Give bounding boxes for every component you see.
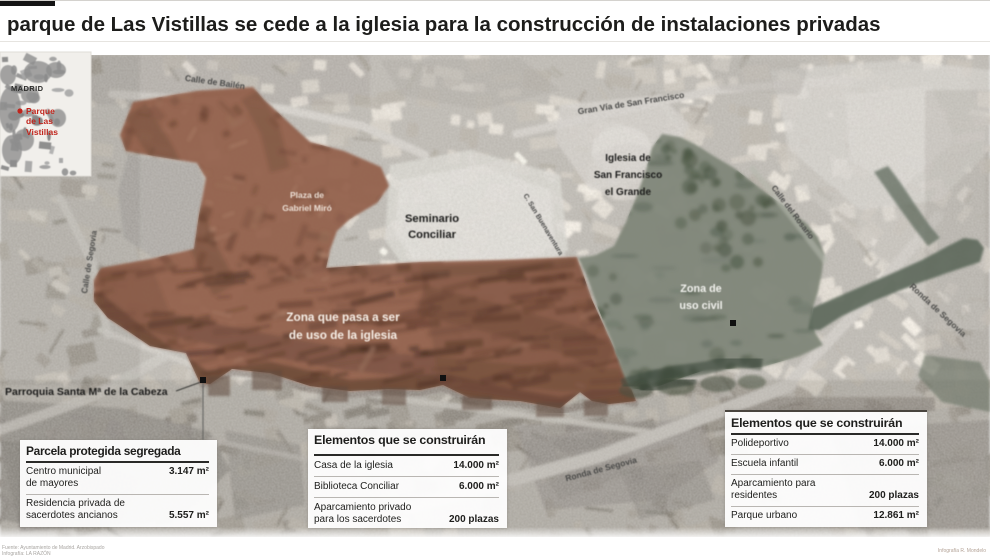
svg-text:Plaza de: Plaza de: [290, 190, 324, 200]
svg-text:San Francisco: San Francisco: [594, 170, 662, 181]
svg-text:Parroquia Santa Ma de la Cabez: Parroquia Santa Ma de la Cabeza: [5, 386, 168, 398]
svg-text:Vistillas: Vistillas: [26, 127, 58, 137]
svg-text:Iglesia de: Iglesia de: [605, 153, 651, 164]
svg-text:de Las: de Las: [26, 116, 53, 126]
svg-text:de uso de la iglesia: de uso de la iglesia: [289, 328, 398, 342]
svg-text:MADRID: MADRID: [11, 84, 44, 93]
svg-text:Gabriel Miró: Gabriel Miró: [282, 203, 332, 213]
svg-text:uso civil: uso civil: [679, 300, 722, 312]
svg-text:Zona de: Zona de: [680, 283, 721, 295]
svg-text:Parque: Parque: [26, 106, 55, 116]
svg-text:Zona que pasa a ser: Zona que pasa a ser: [286, 310, 400, 324]
svg-text:Seminario: Seminario: [405, 213, 459, 225]
svg-text:Conciliar: Conciliar: [408, 229, 457, 241]
svg-text:el Grande: el Grande: [605, 187, 652, 198]
